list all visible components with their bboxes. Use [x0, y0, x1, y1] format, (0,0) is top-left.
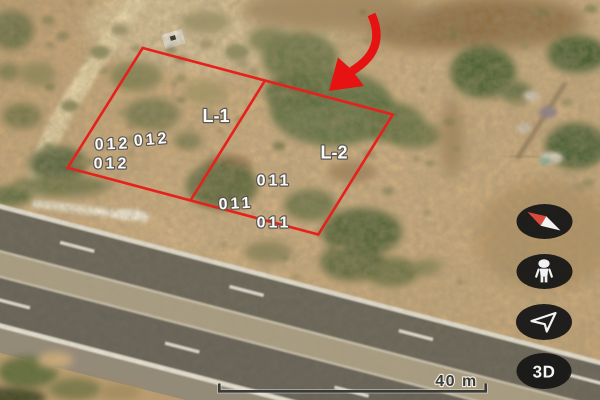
svg-text:L-2: L-2	[321, 143, 348, 163]
svg-text:40 m: 40 m	[435, 373, 477, 390]
svg-text:012: 012	[94, 135, 130, 153]
svg-text:011: 011	[218, 195, 254, 214]
svg-text:011: 011	[257, 215, 292, 232]
svg-text:011: 011	[257, 173, 292, 190]
svg-text:012: 012	[133, 130, 170, 150]
svg-text:L-1: L-1	[203, 106, 230, 126]
svg-text:3D: 3D	[533, 362, 556, 381]
svg-text:012: 012	[94, 156, 130, 173]
